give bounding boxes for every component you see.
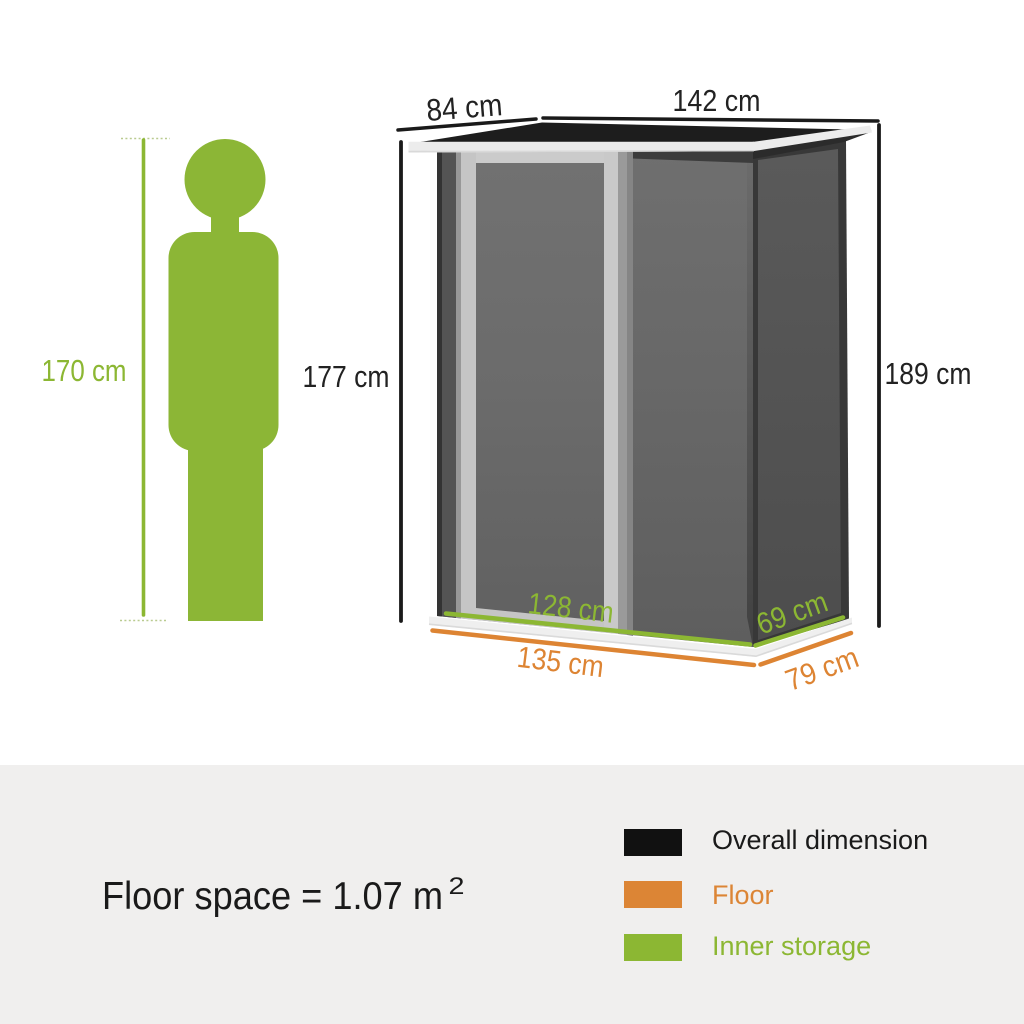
svg-text:177 cm: 177 cm xyxy=(303,359,390,394)
svg-text:Overall dimension: Overall dimension xyxy=(712,825,928,855)
svg-text:142 cm: 142 cm xyxy=(673,83,761,118)
svg-text:Floor: Floor xyxy=(712,880,774,910)
svg-text:Inner storage: Inner storage xyxy=(712,931,871,961)
svg-text:84 cm: 84 cm xyxy=(425,87,504,128)
svg-text:189 cm: 189 cm xyxy=(885,356,972,391)
svg-text:2: 2 xyxy=(449,873,465,900)
svg-text:Floor space = 1.07 m: Floor space = 1.07 m xyxy=(102,875,443,918)
svg-text:170 cm: 170 cm xyxy=(42,353,127,388)
